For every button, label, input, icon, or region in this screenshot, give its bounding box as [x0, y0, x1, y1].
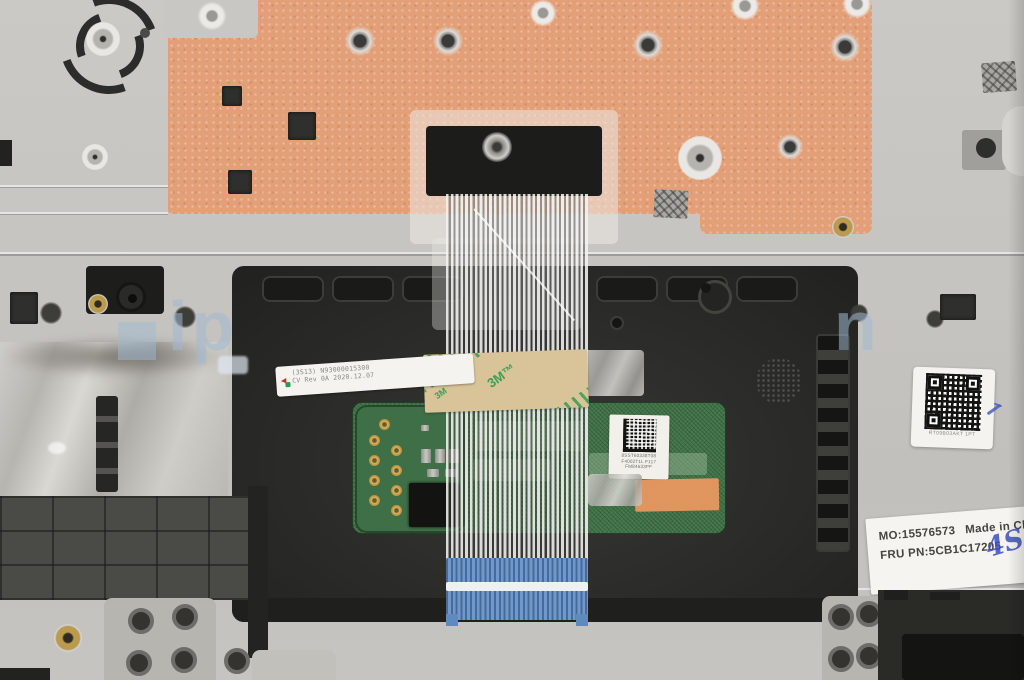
frame-screw-emblem	[698, 280, 732, 314]
ribbon-connector-blue	[446, 558, 588, 620]
label-mo-number: MO:15576573	[878, 525, 956, 543]
palmrest-assembly-photo: 8SST60338T08 F4002T1L F117 FM84633PF 3M™…	[0, 0, 1024, 680]
smd-component	[421, 449, 431, 463]
connector-white-stripe	[446, 582, 588, 591]
frame-ladder-slots	[816, 334, 850, 552]
corner-shadow	[0, 668, 50, 680]
rivet	[633, 30, 663, 60]
fru-part-label: MO:15576573 Made in Ch FRU PN:5CB1C17205…	[865, 505, 1024, 595]
rivet	[345, 26, 375, 56]
plate-hole	[828, 604, 854, 630]
test-pad	[391, 465, 402, 476]
rivet	[830, 32, 860, 62]
edge-slot	[0, 140, 12, 166]
plate-hole	[126, 650, 152, 676]
green-mark	[285, 382, 290, 387]
test-pad	[369, 455, 380, 466]
foam-pad	[228, 170, 252, 194]
pcb-serial-label: 8SST60338T08 F4002T1L F117 FM84633PF	[608, 414, 669, 479]
qr-finder	[966, 376, 980, 390]
foam-pad	[940, 294, 976, 320]
rivet	[777, 134, 803, 160]
foam-pad	[10, 292, 38, 324]
screw-hole-plate	[104, 598, 216, 680]
plate-hole	[224, 648, 250, 674]
screw-post	[832, 216, 854, 238]
screw-eyelet	[82, 144, 108, 170]
right-edge-shade	[1008, 0, 1024, 680]
qr-finder	[928, 375, 942, 389]
plate-hole	[828, 646, 854, 672]
foam-dot	[40, 302, 62, 324]
smd-component	[421, 425, 429, 431]
stiffener-hole	[482, 132, 512, 162]
bottom-right-bracket	[878, 590, 1024, 680]
watermark-logo-block	[118, 322, 156, 360]
bracket-tab	[884, 590, 908, 600]
shield-slot-column	[96, 396, 118, 492]
bracket-tab	[930, 592, 960, 600]
chassis-seam	[0, 187, 168, 188]
bracket-recess	[902, 634, 1024, 680]
rivet	[530, 0, 556, 26]
qr-code-sticker: RT09B03AKT 1PT	[911, 367, 996, 450]
plate-hole	[172, 604, 198, 630]
plastic-eyelet	[678, 136, 722, 180]
foam-pad	[222, 86, 242, 106]
tape-brand-mark-small: 3M	[433, 386, 449, 401]
qr-caption: RT09B03AKT 1PT	[911, 430, 993, 439]
datamatrix-code	[622, 419, 656, 453]
bottom-left-plastic-grid	[0, 496, 260, 600]
screw-post	[88, 294, 108, 314]
frame-cutout	[596, 276, 658, 302]
test-pad	[369, 435, 380, 446]
screw-post-gold	[54, 624, 82, 652]
plate-hole	[171, 647, 197, 673]
screw-eyelet	[86, 22, 120, 56]
frame-cutout	[736, 276, 798, 302]
ribbon-top-stiffener	[426, 126, 602, 196]
test-pad	[391, 445, 402, 456]
frame-hole	[610, 316, 624, 330]
chassis-seam	[0, 214, 168, 215]
watermark-text-right: n	[834, 286, 881, 366]
rivet	[433, 26, 463, 56]
frame-cutout	[262, 276, 324, 302]
connector-foot	[576, 614, 588, 626]
frame-left-rail	[248, 486, 268, 658]
rivet	[198, 2, 226, 30]
watermark-text-left: ip	[168, 286, 238, 366]
tape-brand-mark: 3M™	[484, 361, 518, 391]
clip-barrel	[116, 282, 146, 312]
metal-tape-patch	[653, 189, 688, 219]
orange-sticker	[635, 478, 720, 511]
mylar-scrap	[588, 474, 642, 506]
qr-code	[924, 373, 982, 431]
screw-hole	[976, 138, 996, 158]
screw-hole-plate	[822, 596, 886, 680]
alignment-hole	[140, 28, 150, 38]
textured-disc	[756, 358, 802, 404]
test-pad	[369, 475, 380, 486]
foam-pad	[288, 112, 316, 140]
qr-finder	[926, 413, 940, 427]
mylar-scrap	[584, 350, 644, 396]
connector-foot	[446, 614, 458, 626]
test-pad	[379, 419, 390, 430]
pcb-label-line3: FM84633PF	[609, 464, 669, 471]
plate-hole	[128, 608, 154, 634]
label-fru-number: FRU PN:5CB1C17205	[880, 540, 1002, 561]
frame-cutout	[332, 276, 394, 302]
test-pad	[391, 485, 402, 496]
test-pad	[391, 505, 402, 516]
smd-component	[435, 449, 445, 463]
foil-smudge	[48, 442, 66, 454]
smd-component	[427, 469, 439, 477]
chassis-tab	[252, 650, 336, 680]
test-pad	[369, 495, 380, 506]
